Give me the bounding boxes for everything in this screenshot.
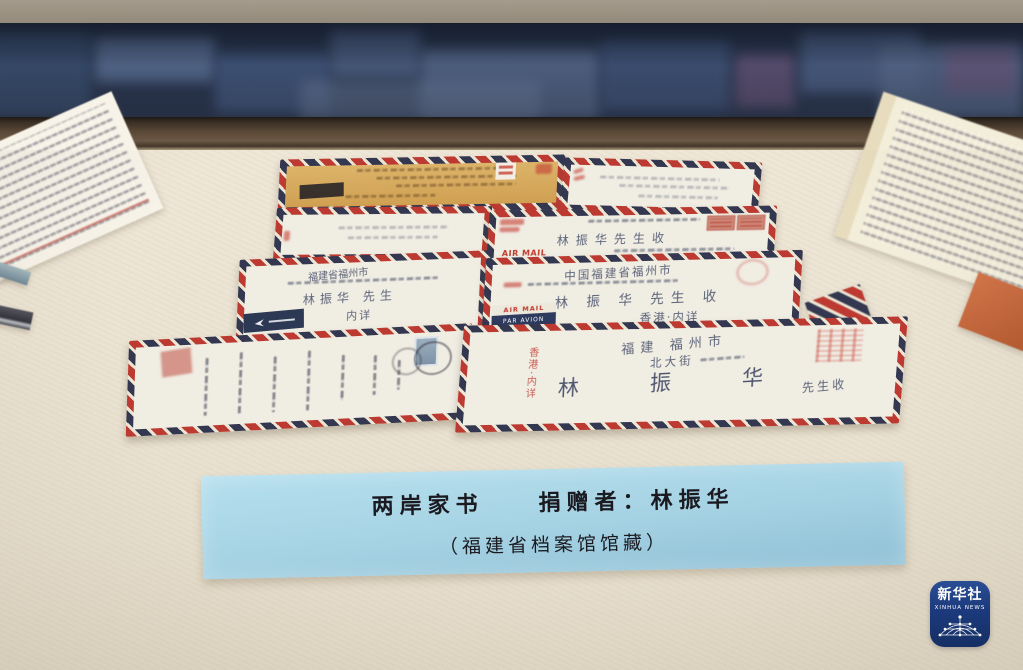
bird-emblem-icon <box>253 317 265 328</box>
exhibit-photo: 林振华先生收 AIR MAIL 福建省福州市 林振华 先生 内详 <box>0 0 1023 670</box>
red-postmark <box>536 164 553 174</box>
red-postcode-mark <box>503 282 521 287</box>
handwriting-scribble <box>619 184 729 190</box>
envelope-body: 福建 福州市 北大街 林 振 华 先生收 香港·内详 <box>463 324 901 426</box>
vertical-handwriting <box>238 352 243 414</box>
envelope-body <box>133 330 465 429</box>
stamp-detail <box>710 218 733 227</box>
xinhua-news-logo: 新华社 XINHUA NEWS <box>930 581 990 647</box>
addressee-handwriting: 林振华 先生 <box>303 286 398 308</box>
handwriting-scribble <box>588 218 700 223</box>
exhibit-title: 两岸家书 <box>371 486 484 520</box>
red-postmark-circle <box>736 259 770 286</box>
handwriting-scribble <box>338 225 448 229</box>
handwriting-scribble <box>396 182 516 187</box>
red-label-line <box>499 165 513 168</box>
glass-shade <box>0 23 1023 118</box>
xinhua-en-text: XINHUA NEWS <box>935 605 986 611</box>
envelope-body <box>280 213 484 255</box>
stamp-detail <box>740 218 763 227</box>
display-surface: 林振华先生收 AIR MAIL 福建省福州市 林振华 先生 内详 <box>0 150 1023 670</box>
envelope-white-6 <box>126 323 472 437</box>
white-stamp-label <box>495 162 516 179</box>
vertical-handwriting <box>340 355 345 401</box>
handwriting-scribble <box>600 175 720 181</box>
caption-card: 两岸家书 捐赠者：林振华 （福建省档案馆馆藏） <box>201 462 906 580</box>
addressee-suffix: 先生收 <box>802 375 847 396</box>
red-label-line <box>499 171 513 174</box>
postage-stamp <box>706 215 735 230</box>
handwriting-scribble <box>357 167 507 173</box>
xinhua-cn-text: 新华社 <box>938 588 983 603</box>
house-number-scribble <box>700 355 744 361</box>
display-case-glass <box>0 23 1023 118</box>
sender-note: 内详 <box>346 307 373 324</box>
envelope-body <box>567 165 754 210</box>
donor-label: 捐赠者：林振华 <box>538 481 735 517</box>
envelope-white-large: 福建 福州市 北大街 林 振 华 先生收 香港·内详 <box>455 316 908 432</box>
red-text-mark <box>499 227 519 232</box>
red-seal <box>161 347 193 377</box>
vertical-handwriting <box>204 358 209 416</box>
postage-stamp <box>737 215 766 230</box>
pen-object-left <box>0 304 33 330</box>
red-arrival-postmark <box>815 328 864 362</box>
handwriting-scribble <box>345 194 435 199</box>
red-mark <box>283 231 290 241</box>
vertical-handwriting <box>306 350 311 410</box>
envelope-yellow <box>277 155 565 215</box>
network-globe-icon <box>936 613 984 639</box>
caption-title-row: 两岸家书 捐赠者：林振华 <box>371 481 735 521</box>
handwriting-scribble <box>638 194 718 199</box>
red-mark <box>574 175 586 181</box>
envelope-body <box>285 162 558 208</box>
wall-strip <box>0 0 1023 23</box>
vertical-handwriting <box>373 355 377 395</box>
postmark-circle <box>391 347 422 377</box>
vertical-handwriting <box>272 356 277 412</box>
airmail-sticker <box>244 309 304 333</box>
handwriting-scribble <box>348 236 438 240</box>
collection-note: （福建省档案馆馆藏） <box>439 527 670 559</box>
addressee-handwriting: 林振华先生收 <box>556 229 671 249</box>
handwriting-texture <box>859 107 1023 306</box>
red-mark <box>573 167 584 174</box>
red-text-mark <box>500 219 524 225</box>
sender-note-vertical: 香港·内详 <box>520 347 541 413</box>
dark-chop-label <box>300 182 344 199</box>
addressee-name-handwriting: 林 振 华 <box>557 360 796 403</box>
sticker-text-bar <box>268 318 294 322</box>
handwriting-scribble <box>528 279 678 286</box>
